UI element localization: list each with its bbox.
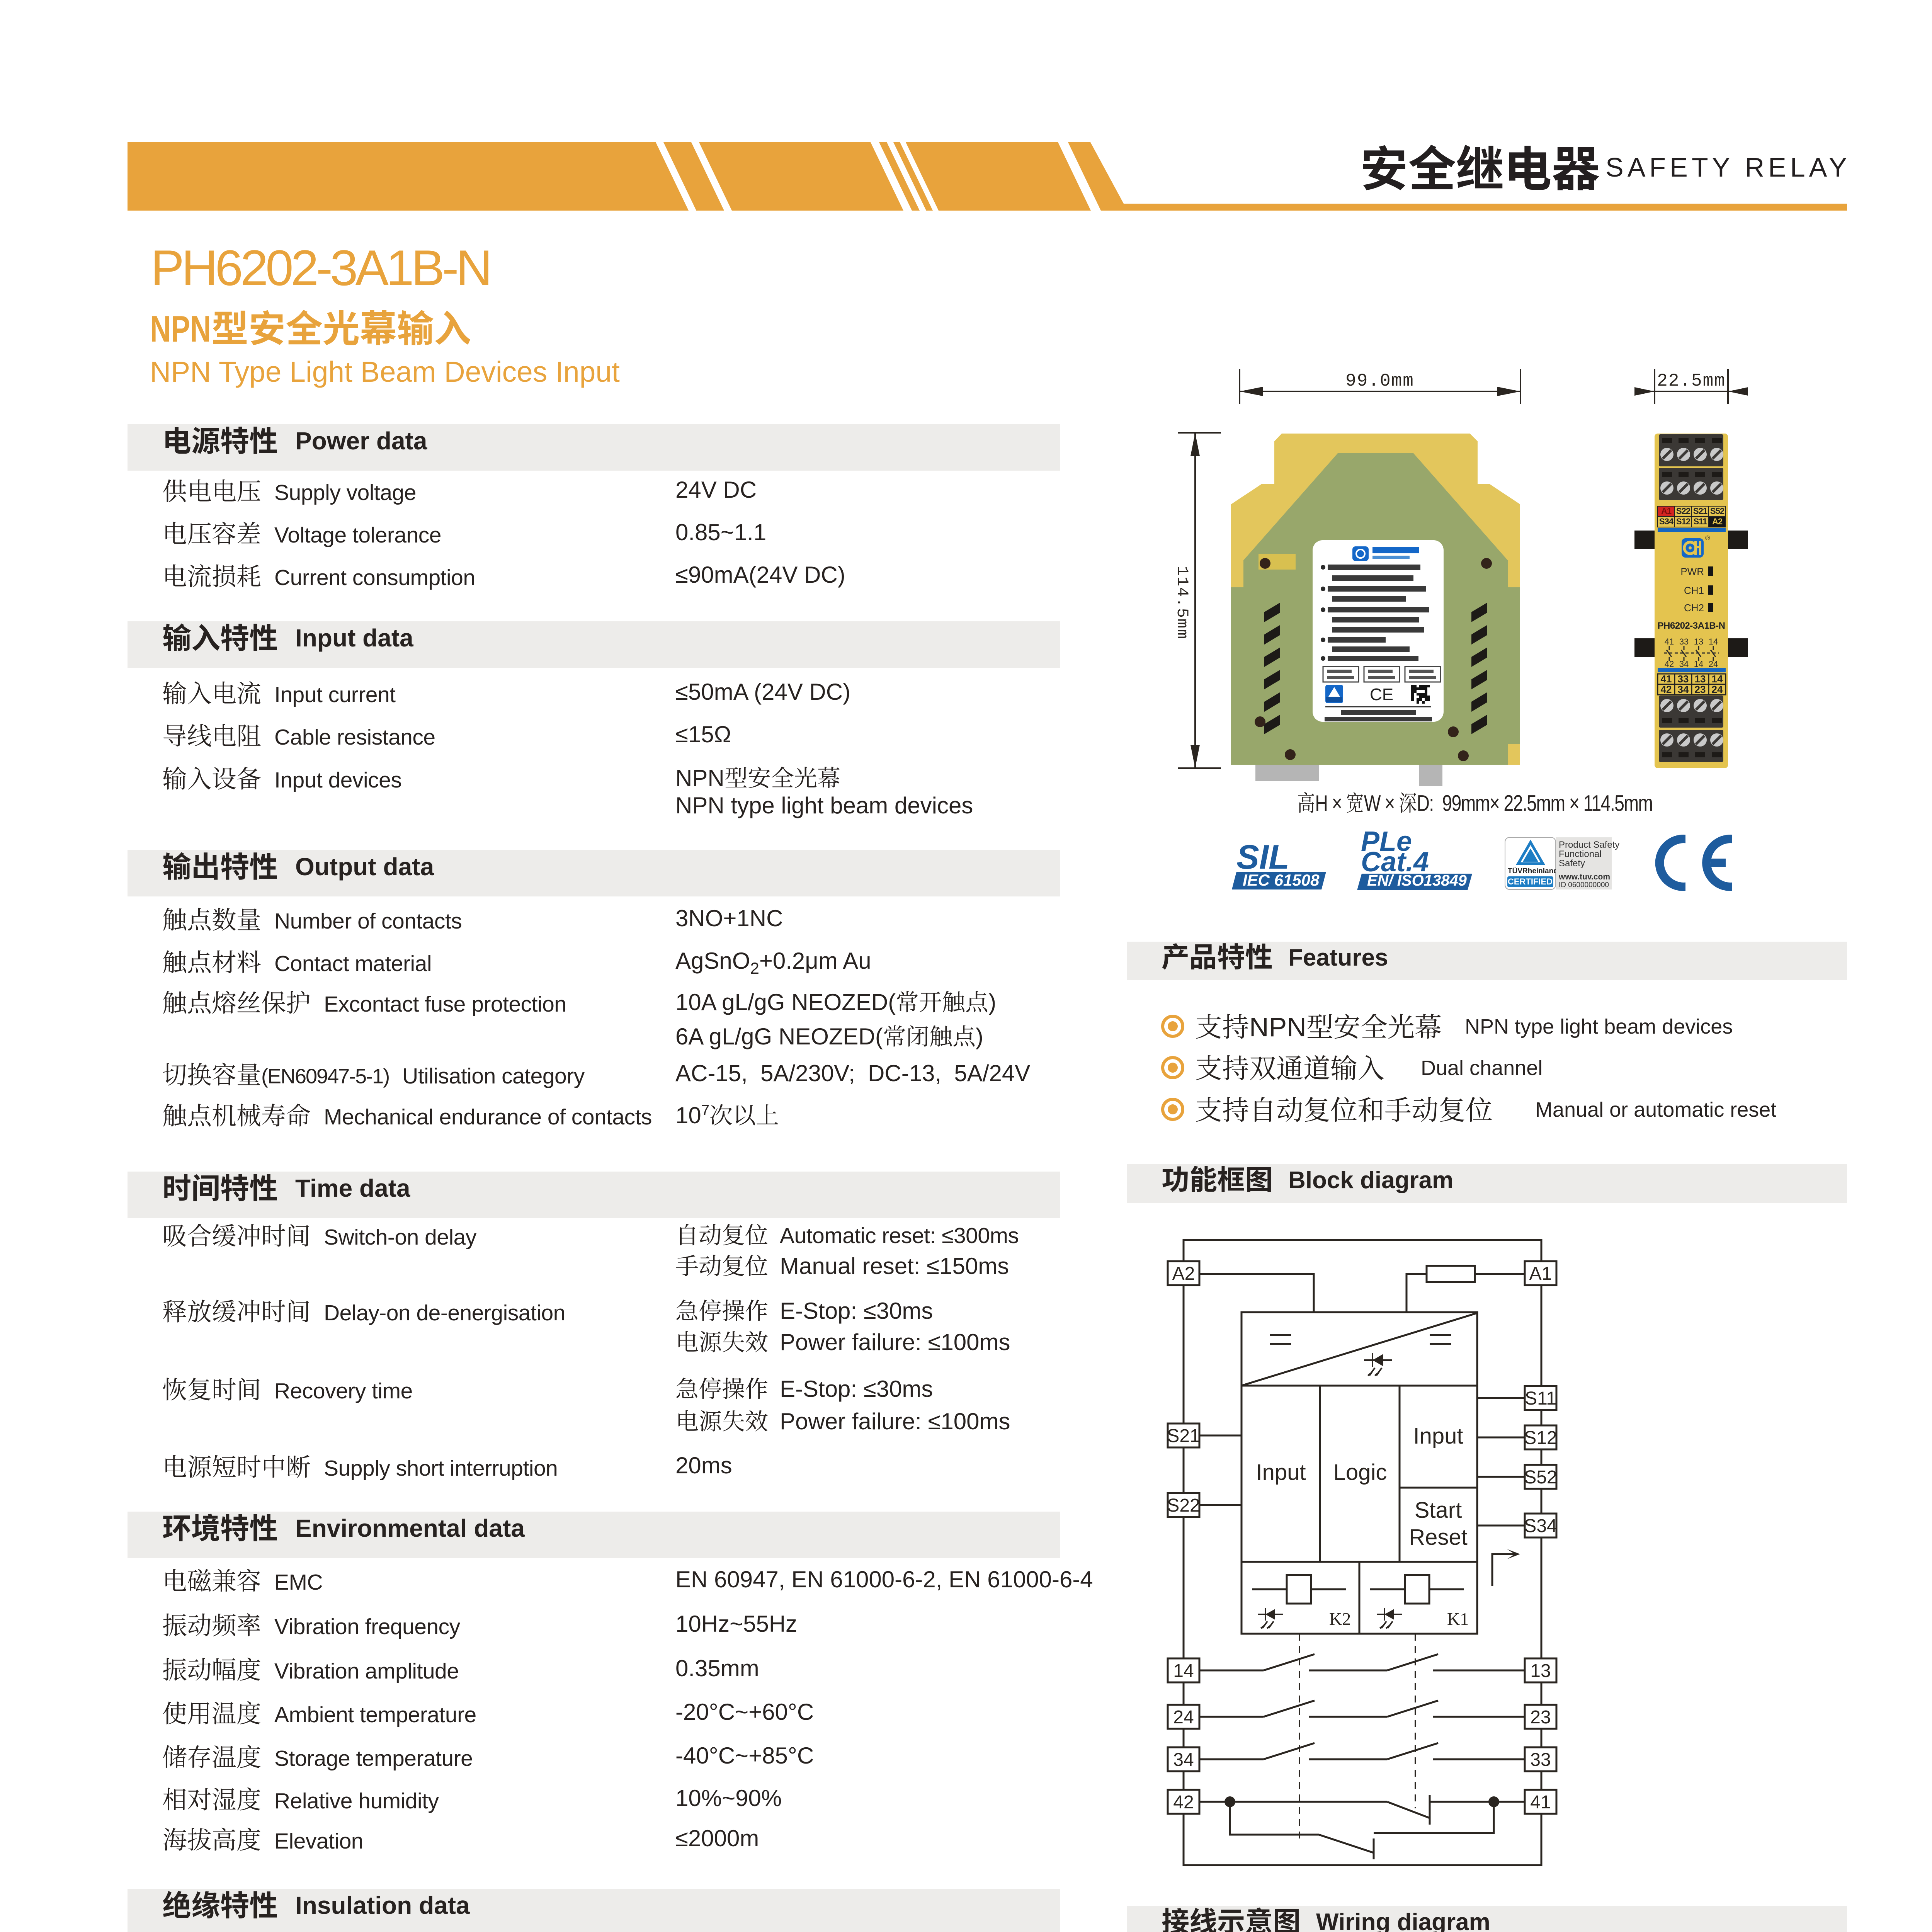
svg-text:41: 41 xyxy=(1530,1792,1551,1813)
svg-text:Logic: Logic xyxy=(1333,1460,1387,1485)
svg-text:Safety: Safety xyxy=(1559,858,1585,869)
svg-text:34: 34 xyxy=(1173,1750,1194,1770)
svg-text:33: 33 xyxy=(1679,637,1689,646)
svg-text:IEC 61508: IEC 61508 xyxy=(1243,871,1320,889)
svg-text:S22: S22 xyxy=(1167,1495,1200,1516)
svg-text:EN/ ISO13849: EN/ ISO13849 xyxy=(1367,872,1467,889)
svg-text:CH1: CH1 xyxy=(1684,585,1704,596)
svg-text:S12: S12 xyxy=(1676,517,1690,526)
svg-text:114.5mm: 114.5mm xyxy=(1173,566,1191,639)
svg-text:TÜVRheinland: TÜVRheinland xyxy=(1508,867,1558,875)
svg-text:K1: K1 xyxy=(1447,1609,1469,1629)
svg-text:33: 33 xyxy=(1678,673,1689,685)
svg-text:S21: S21 xyxy=(1167,1426,1200,1446)
svg-text:S22: S22 xyxy=(1676,506,1690,516)
svg-text:Product Safety: Product Safety xyxy=(1559,840,1619,850)
svg-text:S11: S11 xyxy=(1694,517,1708,526)
svg-text:13: 13 xyxy=(1530,1661,1551,1681)
svg-text:SIL: SIL xyxy=(1236,838,1289,876)
svg-text:41: 41 xyxy=(1661,673,1672,685)
svg-text:S21: S21 xyxy=(1693,506,1708,516)
svg-text:23: 23 xyxy=(1695,684,1706,695)
svg-text:A2: A2 xyxy=(1712,517,1723,526)
svg-text:13: 13 xyxy=(1694,637,1703,646)
svg-text:www.tuv.com: www.tuv.com xyxy=(1558,872,1610,881)
svg-text:14: 14 xyxy=(1173,1661,1194,1681)
svg-text:22.5mm: 22.5mm xyxy=(1657,371,1726,391)
svg-text:S12: S12 xyxy=(1524,1428,1557,1448)
svg-text:K2: K2 xyxy=(1329,1609,1351,1629)
svg-text:PH6202-3A1B-N: PH6202-3A1B-N xyxy=(1658,621,1725,631)
svg-text:Start: Start xyxy=(1415,1498,1462,1523)
svg-text:23: 23 xyxy=(1530,1707,1551,1728)
svg-text:24: 24 xyxy=(1173,1707,1194,1728)
svg-text:S11: S11 xyxy=(1525,1388,1556,1409)
svg-text:A1: A1 xyxy=(1529,1264,1552,1284)
svg-text:Input: Input xyxy=(1413,1423,1463,1449)
svg-text:41: 41 xyxy=(1665,637,1674,646)
svg-text:S34: S34 xyxy=(1524,1516,1557,1536)
svg-text:CE: CE xyxy=(1370,685,1393,704)
svg-text:24: 24 xyxy=(1712,684,1723,695)
svg-text:99.0mm: 99.0mm xyxy=(1345,371,1414,391)
svg-text:®: ® xyxy=(1705,534,1710,542)
svg-text:S52: S52 xyxy=(1710,506,1725,516)
svg-text:42: 42 xyxy=(1173,1792,1194,1813)
svg-text:S34: S34 xyxy=(1659,517,1674,526)
svg-text:S52: S52 xyxy=(1524,1467,1557,1488)
svg-text:CERTIFIED: CERTIFIED xyxy=(1508,877,1553,886)
svg-text:ID 0600000000: ID 0600000000 xyxy=(1559,881,1609,889)
svg-text:14: 14 xyxy=(1709,637,1718,646)
svg-text:34: 34 xyxy=(1678,684,1689,695)
svg-text:42: 42 xyxy=(1661,684,1672,695)
svg-text:PWR: PWR xyxy=(1680,566,1704,577)
svg-text:A1: A1 xyxy=(1661,506,1672,516)
svg-text:Functional: Functional xyxy=(1559,849,1602,859)
svg-text:13: 13 xyxy=(1695,673,1706,685)
svg-text:33: 33 xyxy=(1530,1750,1551,1770)
svg-text:14: 14 xyxy=(1712,673,1723,685)
svg-text:Input: Input xyxy=(1256,1460,1306,1485)
svg-text:A2: A2 xyxy=(1172,1264,1195,1284)
svg-text:Reset: Reset xyxy=(1409,1525,1468,1550)
svg-text:CH2: CH2 xyxy=(1684,602,1704,614)
